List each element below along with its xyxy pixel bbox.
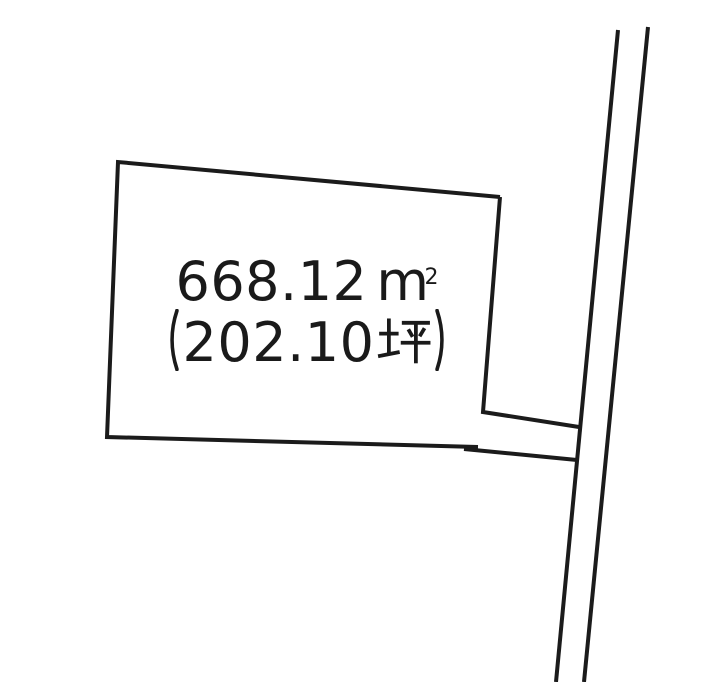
- fullwidth-close-paren-glyph: [434, 309, 449, 371]
- fullwidth-open-paren-glyph: [165, 309, 180, 371]
- area-sqm-unit-exponent: 2: [425, 265, 439, 290]
- area-sqm-line: 668.12m2: [107, 246, 507, 309]
- tsubo-kanji-glyph: [377, 312, 431, 366]
- road-edge-right: [584, 27, 648, 682]
- area-label: 668.12m2 202.10: [107, 246, 507, 372]
- area-tsubo-line: 202.10: [107, 309, 507, 372]
- land-plot-diagram: 668.12m2 202.10: [0, 0, 716, 682]
- area-sqm-unit: m: [376, 250, 429, 313]
- flag-strip-bottom-edge: [464, 449, 577, 460]
- area-sqm-value: 668.12: [175, 250, 367, 313]
- road-edge-left: [556, 30, 618, 682]
- area-tsubo-value: 202.10: [183, 311, 375, 374]
